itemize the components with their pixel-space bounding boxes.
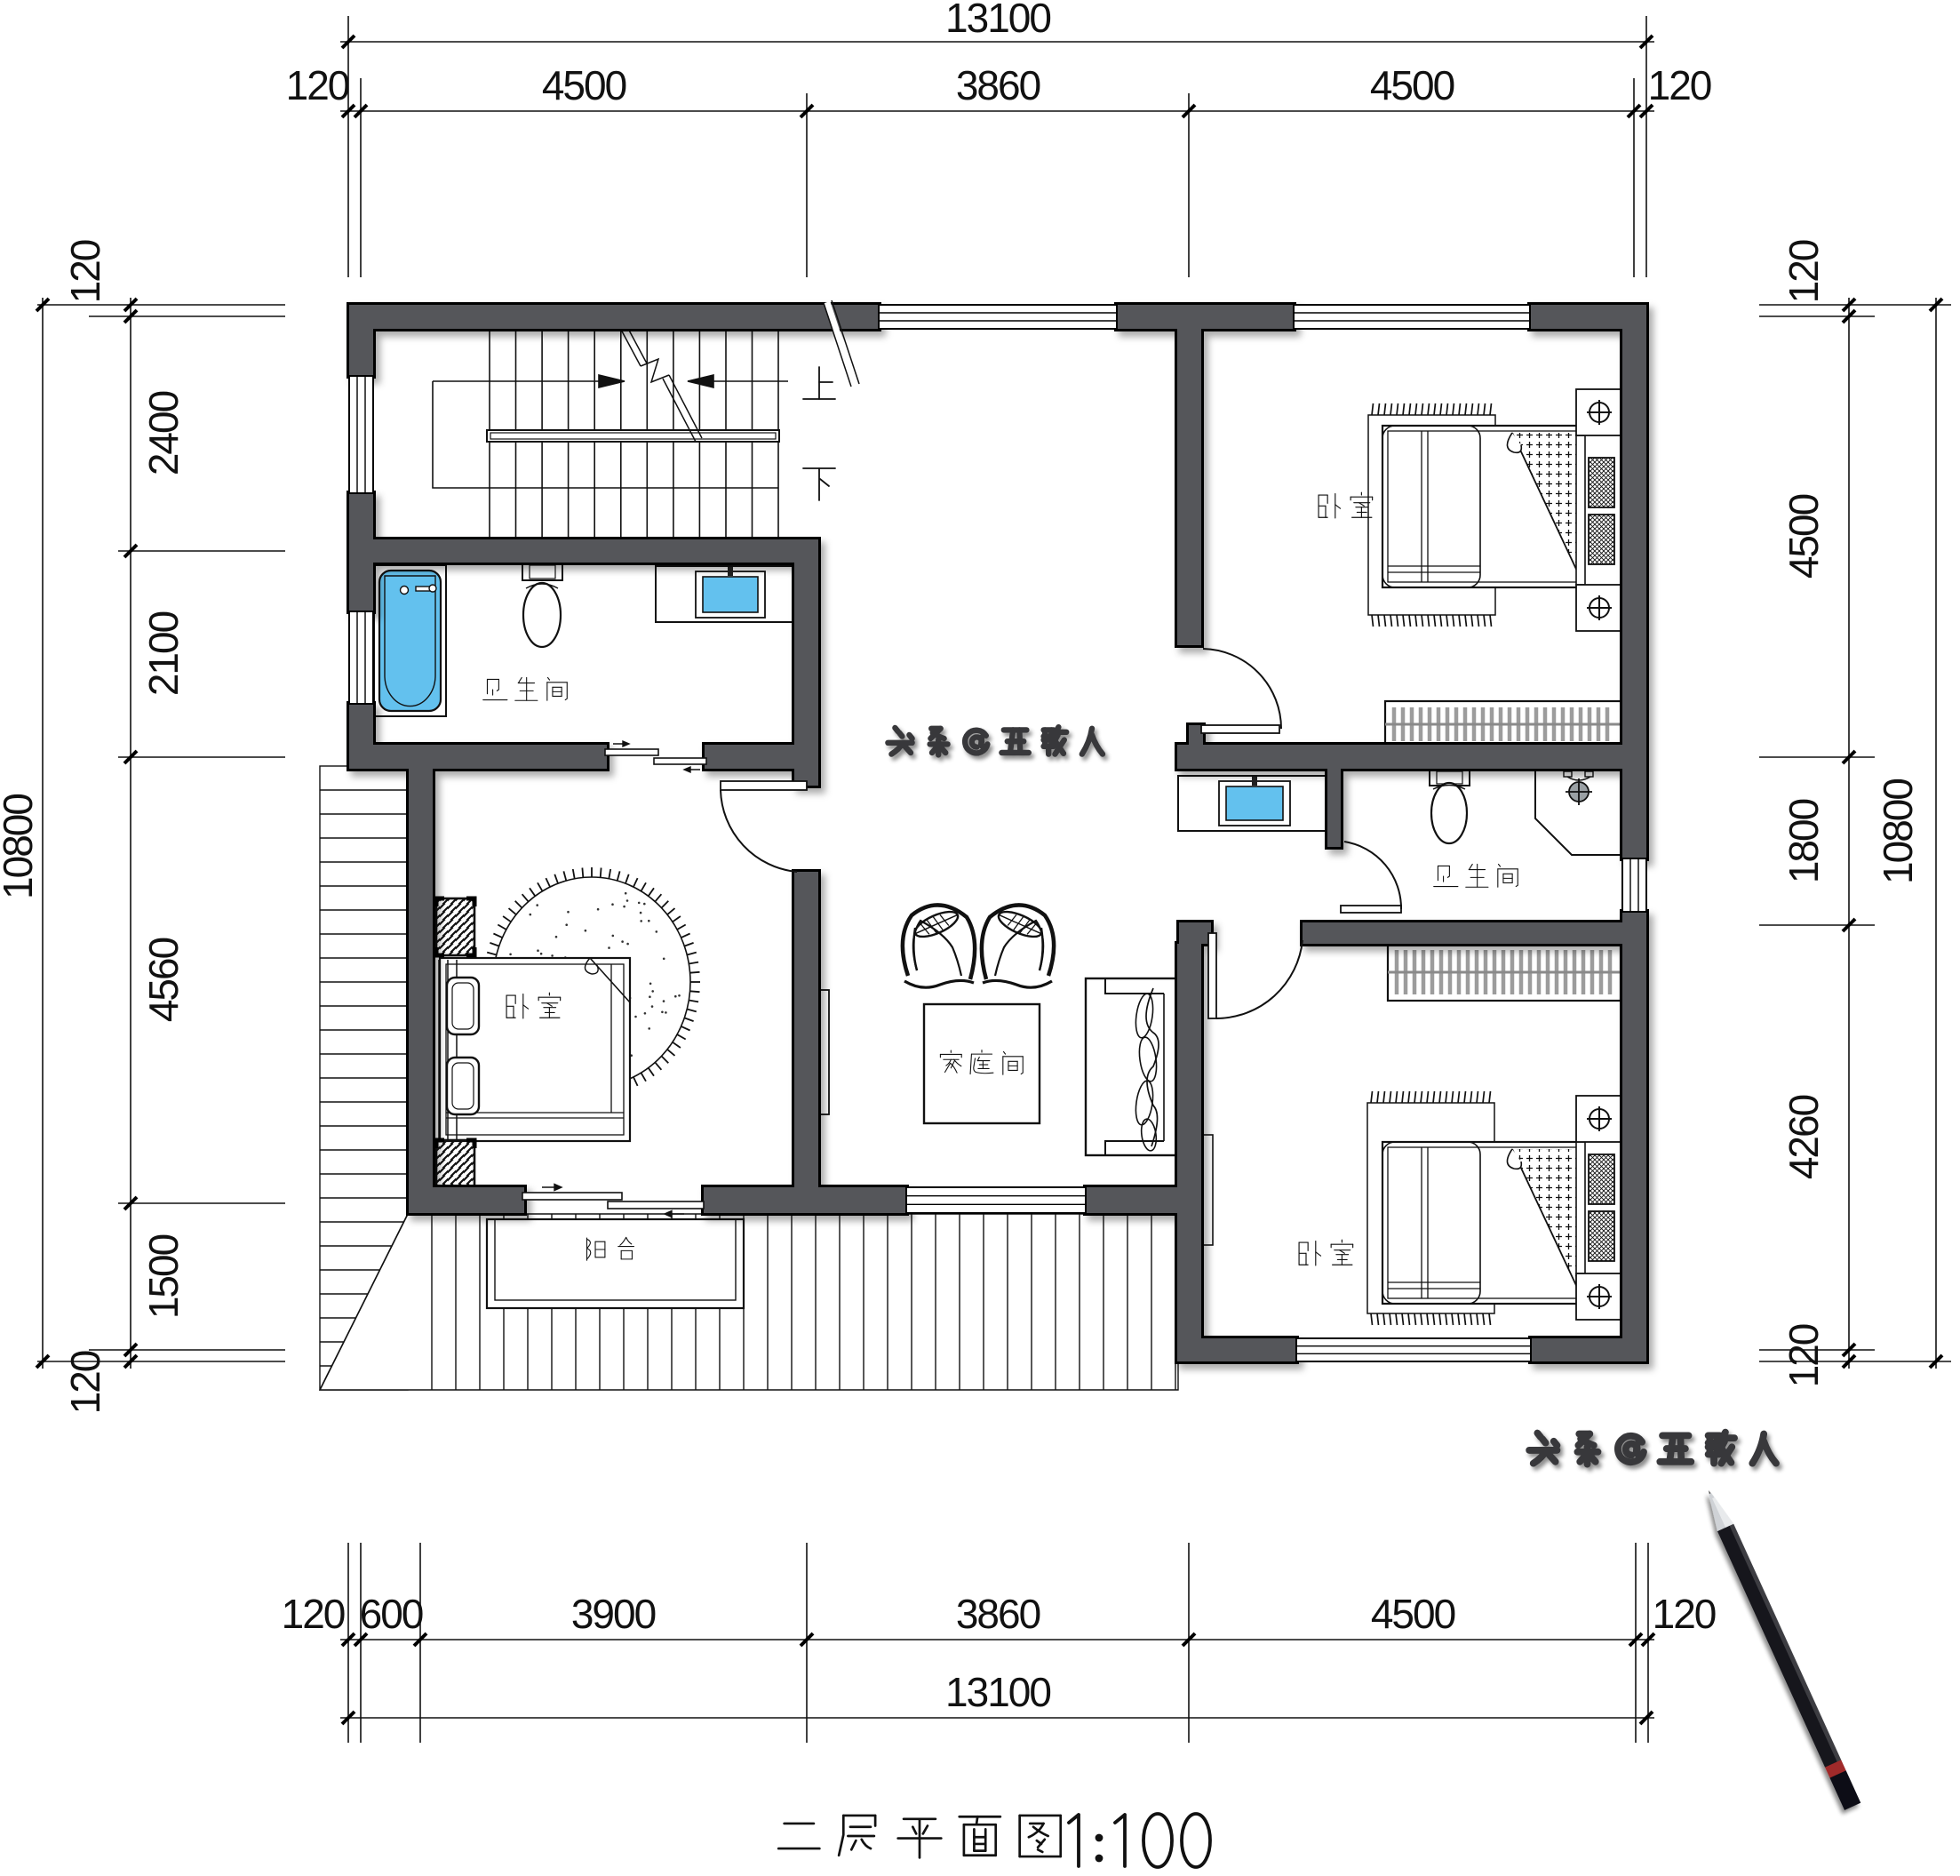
svg-text:4500: 4500 — [542, 62, 626, 108]
svg-text:4500: 4500 — [1371, 1591, 1455, 1637]
svg-text:13100: 13100 — [945, 1669, 1050, 1715]
svg-text:3860: 3860 — [956, 62, 1040, 108]
svg-text:2100: 2100 — [140, 611, 187, 696]
svg-text:1800: 1800 — [1781, 799, 1827, 883]
svg-text:120: 120 — [286, 62, 349, 108]
svg-text:4260: 4260 — [1781, 1095, 1827, 1179]
svg-text:3900: 3900 — [571, 1591, 656, 1637]
svg-text:120: 120 — [1781, 1324, 1827, 1387]
svg-text:120: 120 — [282, 1591, 345, 1637]
svg-text:120: 120 — [1781, 240, 1827, 303]
svg-text:1500: 1500 — [140, 1234, 187, 1319]
svg-text:600: 600 — [360, 1591, 423, 1637]
svg-text:10800: 10800 — [1875, 779, 1921, 884]
svg-text:4560: 4560 — [140, 938, 187, 1022]
svg-text:3860: 3860 — [956, 1591, 1040, 1637]
svg-text:2400: 2400 — [140, 391, 187, 475]
svg-text:120: 120 — [1653, 1591, 1716, 1637]
svg-text:120: 120 — [1648, 62, 1711, 108]
svg-text:10800: 10800 — [0, 794, 41, 899]
svg-text:120: 120 — [62, 240, 108, 303]
svg-text:4500: 4500 — [1781, 494, 1827, 579]
svg-text:13100: 13100 — [945, 0, 1050, 41]
svg-text:4500: 4500 — [1370, 62, 1454, 108]
svg-text:120: 120 — [62, 1351, 108, 1414]
